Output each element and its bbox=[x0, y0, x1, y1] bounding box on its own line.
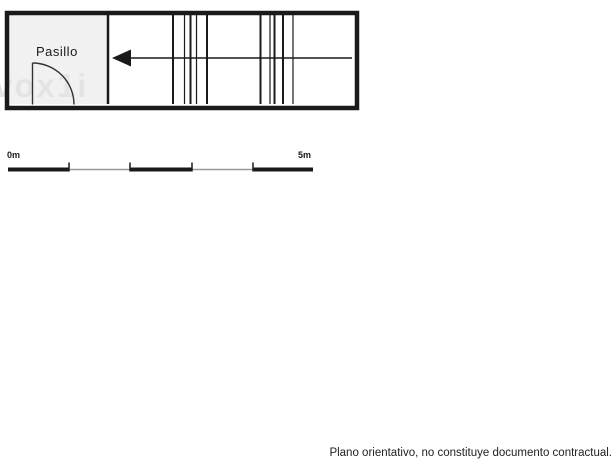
scale-start-label: 0m bbox=[7, 150, 20, 160]
scale-bar bbox=[8, 163, 313, 172]
room-label: Pasillo bbox=[36, 44, 78, 59]
direction-arrow-head bbox=[112, 50, 131, 67]
watermark-text: vox1i bbox=[0, 67, 88, 104]
disclaimer-text: Plano orientativo, no constituye documen… bbox=[329, 447, 612, 459]
scale-end-label: 5m bbox=[298, 150, 311, 160]
floor-plan-page: vox1i bbox=[0, 0, 616, 472]
floor-plan-drawing: vox1i bbox=[0, 0, 616, 472]
